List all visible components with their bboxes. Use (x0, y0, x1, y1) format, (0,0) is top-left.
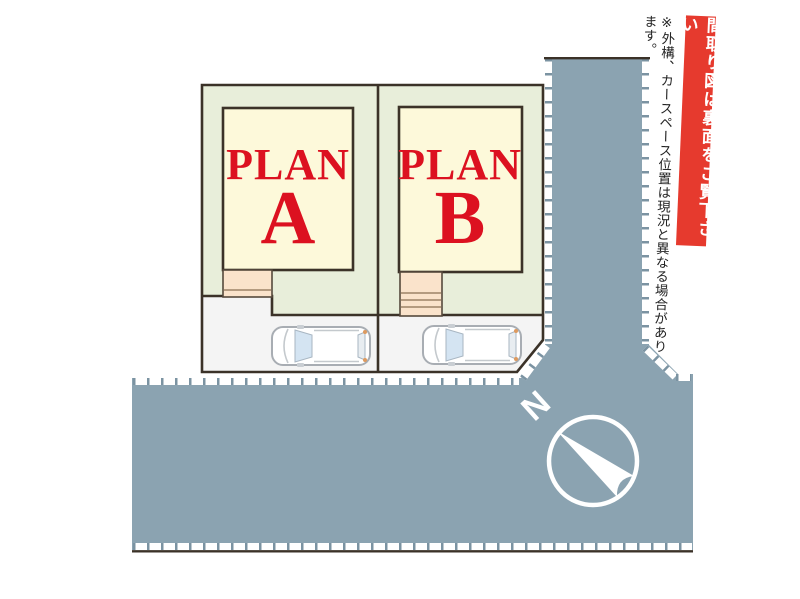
site-plan-flyer: PLAN A PLAN B 間取り図は裏面をご覧下さい ※外構、カースペース位置… (0, 0, 800, 599)
porch-b-steps (400, 272, 442, 316)
car-b-icon (423, 324, 521, 366)
car-a-icon (272, 325, 370, 367)
plan-a-label: PLAN A (203, 143, 373, 249)
plan-b-letter: B (375, 187, 545, 249)
side-banner: 間取り図は裏面をご覧下さい (676, 15, 716, 246)
plan-b-label: PLAN B (375, 143, 545, 249)
plan-a-letter: A (203, 187, 373, 249)
porch-a (223, 270, 272, 297)
